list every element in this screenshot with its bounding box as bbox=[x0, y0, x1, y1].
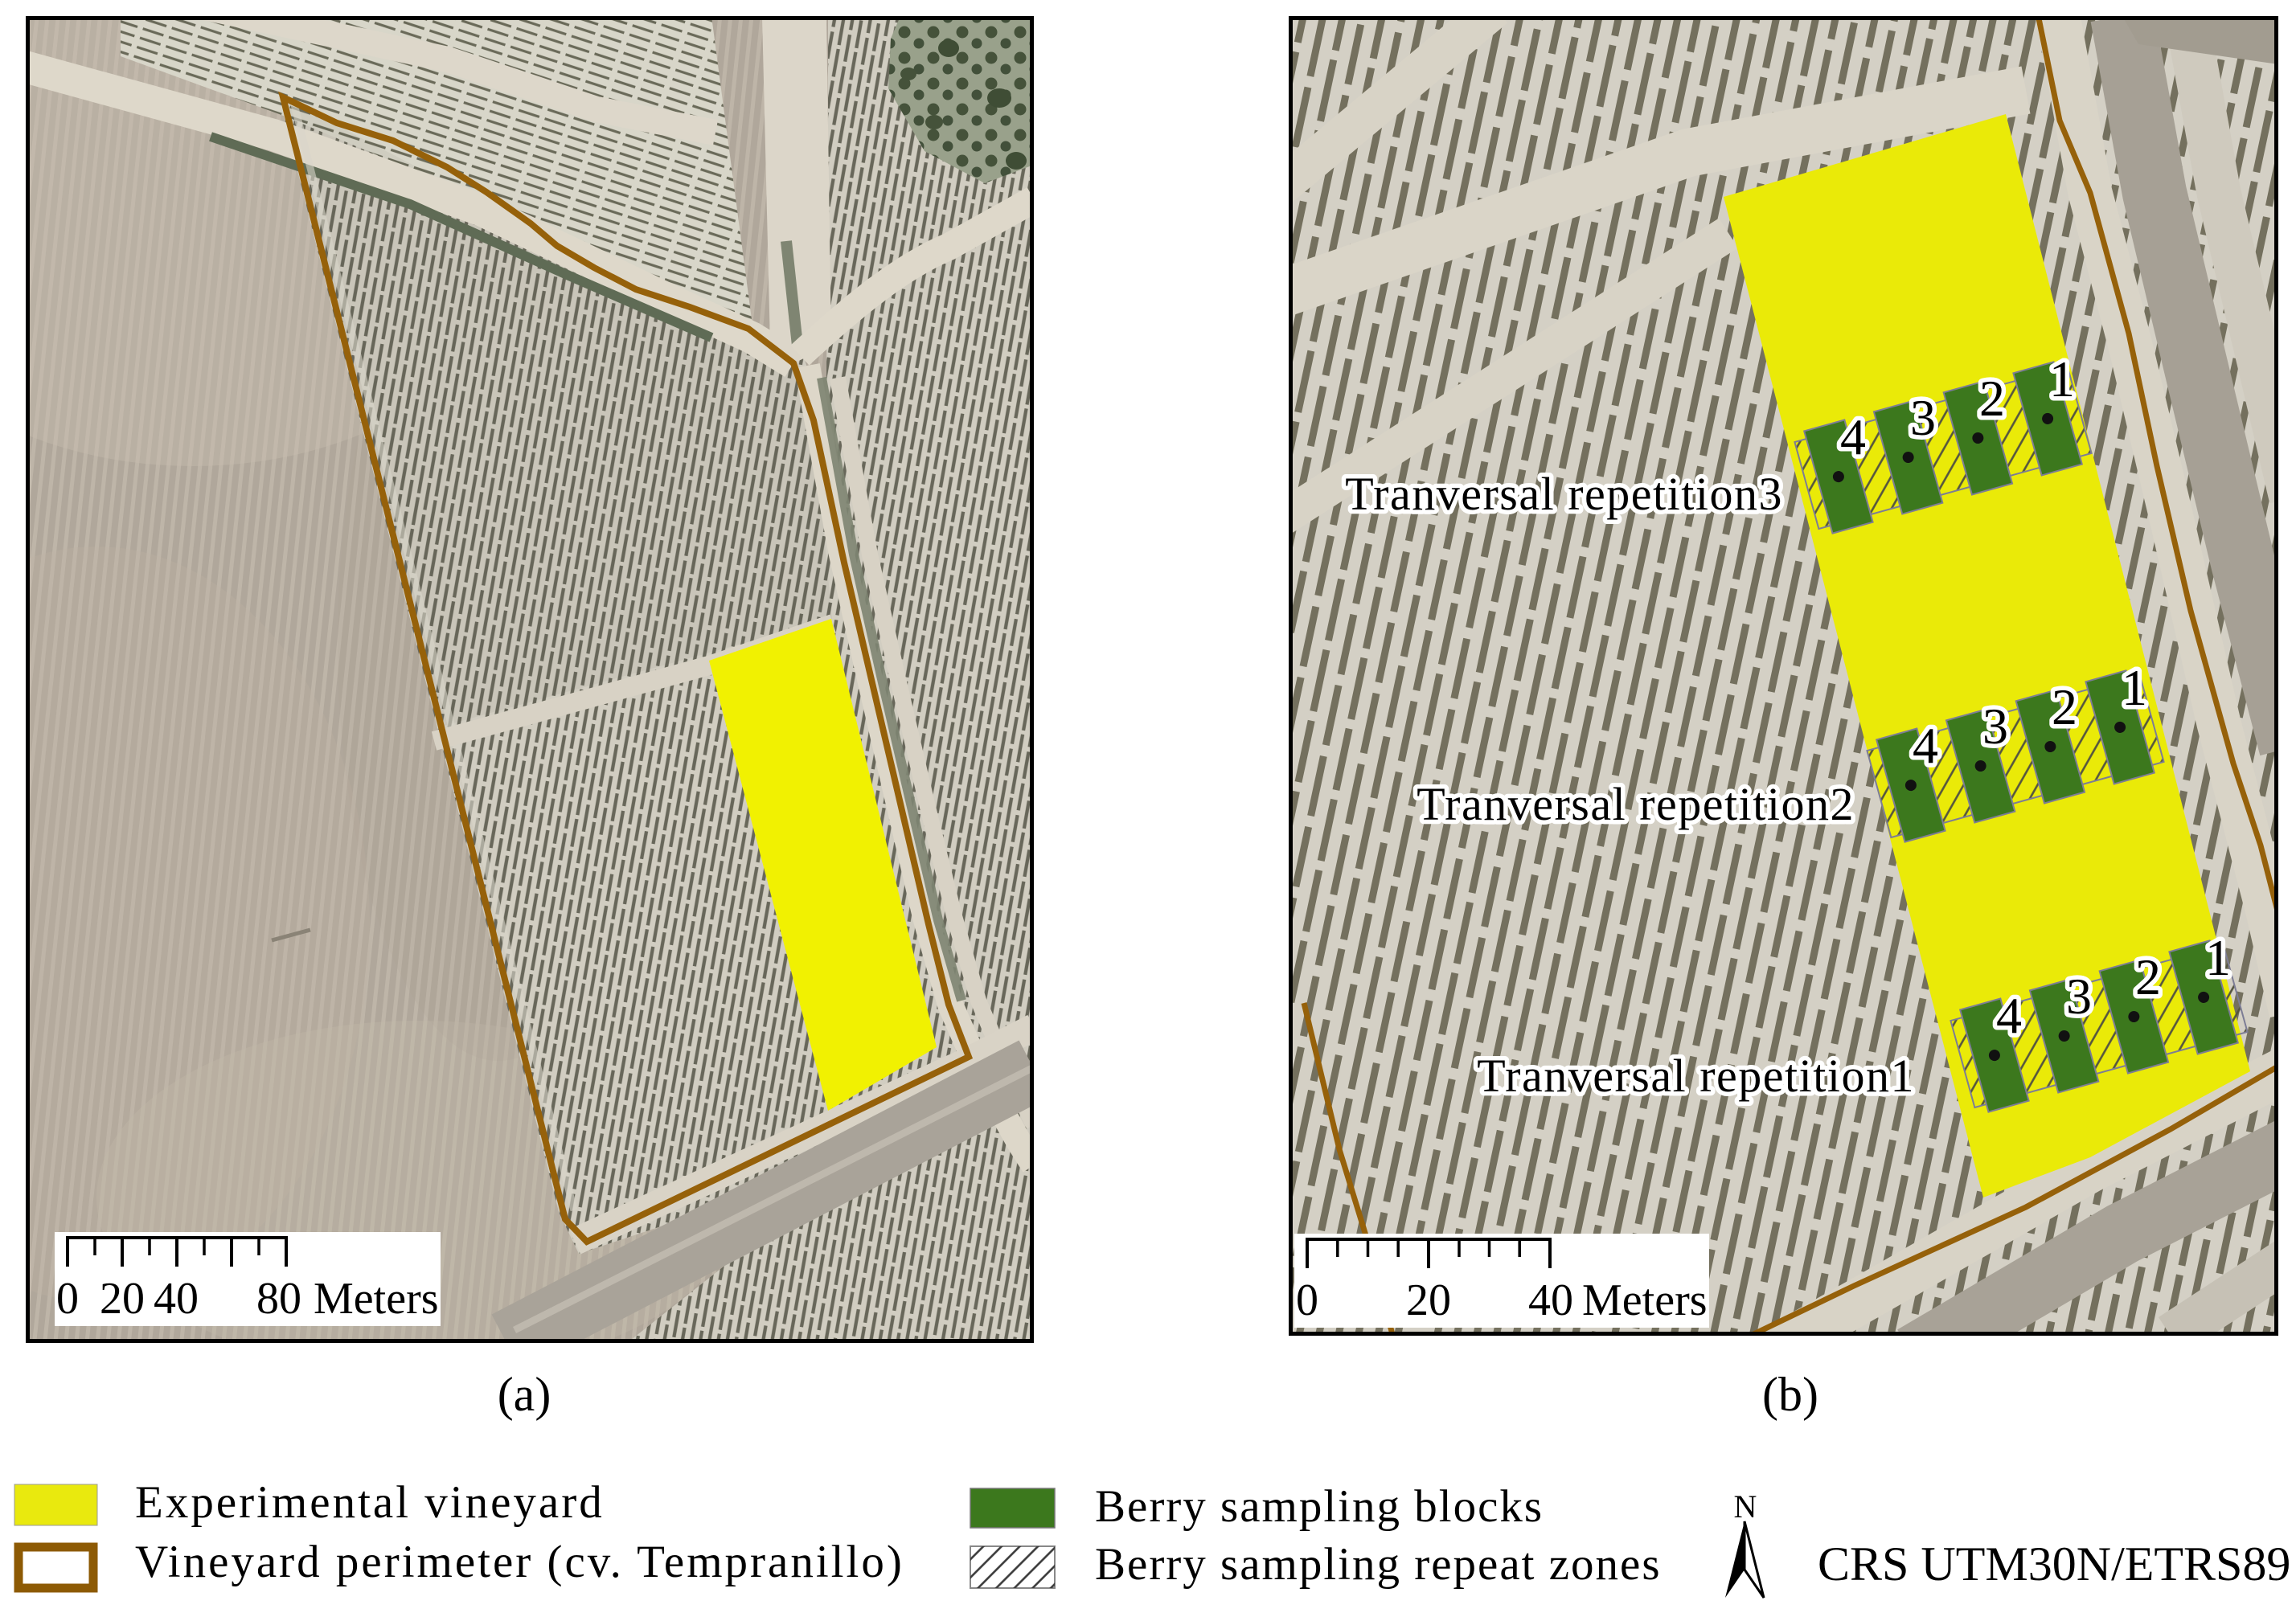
svg-text:CRS UTM30N/ETRS89: CRS UTM30N/ETRS89 bbox=[1818, 1537, 2290, 1590]
svg-text:Meters: Meters bbox=[1582, 1275, 1708, 1325]
svg-text:20: 20 bbox=[1406, 1275, 1451, 1325]
svg-text:4: 4 bbox=[1840, 408, 1866, 465]
svg-text:3: 3 bbox=[1982, 698, 2008, 755]
svg-text:Tranversal repetition3: Tranversal repetition3 bbox=[1345, 468, 1783, 520]
svg-text:Tranversal repetition1: Tranversal repetition1 bbox=[1477, 1050, 1915, 1102]
svg-text:0: 0 bbox=[1296, 1275, 1318, 1325]
svg-text:N: N bbox=[1734, 1488, 1757, 1525]
svg-text:Vineyard perimeter (cv. Tempra: Vineyard perimeter (cv. Tempranillo) bbox=[135, 1537, 904, 1587]
svg-text:40: 40 bbox=[154, 1274, 199, 1324]
svg-text:1: 1 bbox=[2049, 350, 2075, 407]
svg-text:3: 3 bbox=[1910, 389, 1936, 446]
svg-text:4: 4 bbox=[1913, 717, 1938, 774]
svg-text:3: 3 bbox=[2066, 968, 2092, 1025]
svg-text:40: 40 bbox=[1528, 1275, 1573, 1325]
svg-text:2: 2 bbox=[1979, 370, 2005, 427]
svg-text:2: 2 bbox=[2135, 948, 2161, 1005]
svg-text:2: 2 bbox=[2052, 678, 2077, 735]
svg-text:Berry sampling repeat zones: Berry sampling repeat zones bbox=[1095, 1539, 1662, 1590]
svg-text:1: 1 bbox=[2205, 929, 2231, 986]
svg-text:Experimental vineyard: Experimental vineyard bbox=[135, 1477, 605, 1528]
svg-text:Berry sampling blocks: Berry sampling blocks bbox=[1095, 1481, 1544, 1532]
svg-text:(b): (b) bbox=[1762, 1368, 1818, 1421]
svg-text:1: 1 bbox=[2122, 659, 2147, 716]
svg-text:Meters: Meters bbox=[314, 1274, 439, 1324]
svg-text:Tranversal repetition2: Tranversal repetition2 bbox=[1417, 778, 1855, 830]
svg-text:80: 80 bbox=[256, 1274, 301, 1324]
svg-text:4: 4 bbox=[1996, 987, 2022, 1044]
svg-text:20: 20 bbox=[100, 1274, 145, 1324]
svg-text:(a): (a) bbox=[498, 1368, 551, 1421]
svg-text:0: 0 bbox=[56, 1274, 79, 1324]
